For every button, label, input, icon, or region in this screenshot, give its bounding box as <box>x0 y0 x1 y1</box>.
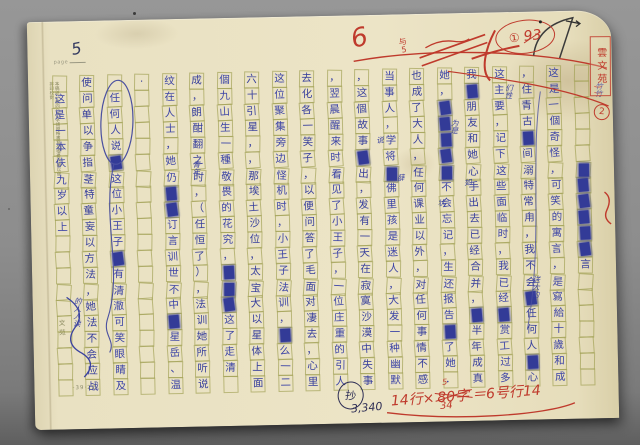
interline-insert: 状 <box>437 199 445 208</box>
red-margin-squiggle <box>604 192 611 224</box>
score-93: 93 <box>523 27 542 45</box>
interline-insert: 们性 <box>504 84 513 99</box>
red-curve-line <box>448 68 609 109</box>
interline-insert: 为是 <box>450 119 459 134</box>
interline-insert: 说 <box>376 136 384 145</box>
dust-speck <box>8 208 10 210</box>
scanner-background: page 5 本稿紙一張四〇〇字請照格書寫勿摺疊污損以便排印校對 文苑 -39·… <box>0 0 640 445</box>
circled-one-mark: ① <box>508 30 520 45</box>
interline-insert: 送大约 <box>531 275 540 298</box>
red-fraction-bottom: 5 <box>399 46 408 55</box>
formula-struck-term: 580字34 <box>437 385 470 407</box>
interline-insert: 青年 <box>192 160 201 175</box>
formula-correction-below: 34 <box>440 400 454 412</box>
red-name-stamp: 雲文苑 <box>590 36 611 96</box>
formula-prefix: 14行× <box>390 390 435 409</box>
black-arrow-mark <box>566 21 580 27</box>
red-long-line <box>354 49 607 73</box>
ink-dot <box>539 20 542 23</box>
manuscript-page: page 5 本稿紙一張四〇〇字請照格書寫勿摺疊污損以便排印校對 文苑 -39·… <box>27 10 619 430</box>
red-strikeout-slashes <box>419 35 488 66</box>
dust-speck <box>133 12 136 15</box>
red-pen-marks-svg <box>27 10 619 430</box>
interline-insert: 如 <box>464 179 472 188</box>
interline-insert: 的人人读 <box>72 297 81 327</box>
interline-insert: 薛 <box>397 174 405 183</box>
formula-correction-above: 5 <box>442 377 448 386</box>
